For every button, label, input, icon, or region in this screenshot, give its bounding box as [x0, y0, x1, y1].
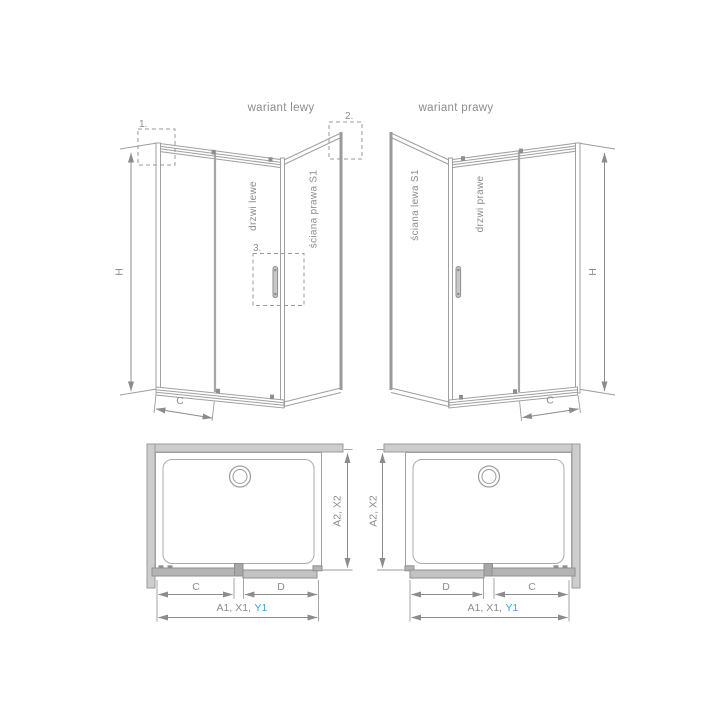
- left-plan-view: [147, 444, 353, 622]
- wall-side: [147, 444, 155, 588]
- right-variant-title: wariant prawy: [418, 102, 494, 114]
- side-wall-top-edge: [391, 138, 449, 165]
- right-plan-view: [377, 444, 580, 622]
- callout-1-label: 1.: [139, 119, 147, 130]
- door-profile-fixed: [243, 570, 317, 578]
- left-plan-depth-label: A2, X2: [332, 495, 344, 527]
- handle-screw: [274, 269, 277, 272]
- handle-screw: [457, 269, 460, 272]
- side-wall-top-edge: [284, 133, 341, 160]
- h-extension-top: [578, 143, 615, 149]
- shower-enclosure-diagram: wariant lewy drzwi lewe ściana prawa S1 …: [0, 0, 720, 720]
- right-c-label: C: [546, 395, 554, 407]
- left-plan-total-accent-label: Y1: [255, 602, 268, 614]
- c-dimension-line: [156, 409, 212, 418]
- right-post: [576, 143, 581, 393]
- left-door-label: drzwi lewe: [248, 181, 259, 231]
- left-h-label: H: [114, 268, 126, 276]
- top-rail: [449, 143, 578, 168]
- wall-top: [147, 444, 343, 452]
- right-plan-depth-label: A2, X2: [368, 495, 380, 527]
- handle-screw: [274, 293, 277, 296]
- corner-post: [281, 158, 285, 407]
- wall-top: [384, 444, 580, 452]
- h-extension-bottom: [120, 389, 157, 395]
- roller: [459, 395, 463, 400]
- right-plan-c-label: C: [528, 581, 536, 593]
- handle-knob: [235, 564, 244, 577]
- callout-box-3: [253, 254, 304, 306]
- c-extension-right: [578, 395, 581, 413]
- handle-screw: [457, 293, 460, 296]
- door-profile-sliding: [152, 568, 235, 576]
- right-plan-total-label: A1, X1,: [468, 602, 502, 614]
- roller: [216, 389, 220, 394]
- left-elevation: [120, 122, 362, 421]
- left-variant-title: wariant lewy: [247, 102, 315, 114]
- top-rail-line: [449, 146, 578, 163]
- left-wall-label: ściana prawa S1: [309, 170, 320, 249]
- roller: [563, 565, 568, 568]
- right-door-label: drzwi prawe: [475, 176, 486, 233]
- roller: [159, 565, 164, 568]
- handle-knob: [484, 564, 493, 577]
- wall-bracket: [313, 566, 322, 571]
- roller: [168, 565, 173, 568]
- left-plan-c-label: C: [192, 581, 200, 593]
- top-rail-line: [449, 148, 578, 165]
- left-post: [156, 143, 161, 393]
- right-elevation: [391, 132, 615, 421]
- left-c-label: C: [176, 395, 184, 407]
- wall-side: [572, 444, 580, 588]
- side-wall-top-edge: [391, 133, 449, 160]
- roller: [554, 565, 559, 568]
- left-plan-d-label: D: [277, 581, 285, 593]
- left-plan-total-label: A1, X1,: [217, 602, 251, 614]
- door-profile-fixed: [410, 570, 484, 578]
- corner-post: [449, 158, 453, 407]
- door-profile-sliding: [492, 568, 575, 576]
- right-plan-total-accent-label: Y1: [506, 602, 519, 614]
- side-wall-top-edge: [284, 138, 341, 165]
- right-wall-label: ściana lewa S1: [410, 169, 421, 241]
- callout-3-label: 3.: [253, 243, 261, 254]
- roller: [212, 150, 216, 155]
- callout-2-label: 2.: [345, 111, 353, 122]
- diagram-page: wariant lewy drzwi lewe ściana prawa S1 …: [0, 0, 720, 720]
- roller: [461, 156, 465, 161]
- right-h-label: H: [587, 268, 599, 276]
- roller: [513, 389, 517, 394]
- c-dimension-line: [523, 409, 579, 418]
- right-plan-d-label: D: [442, 581, 450, 593]
- roller: [270, 395, 274, 400]
- roller: [269, 157, 273, 162]
- roller: [519, 149, 523, 154]
- c-extension-left: [154, 395, 156, 413]
- h-extension-bottom: [578, 389, 615, 395]
